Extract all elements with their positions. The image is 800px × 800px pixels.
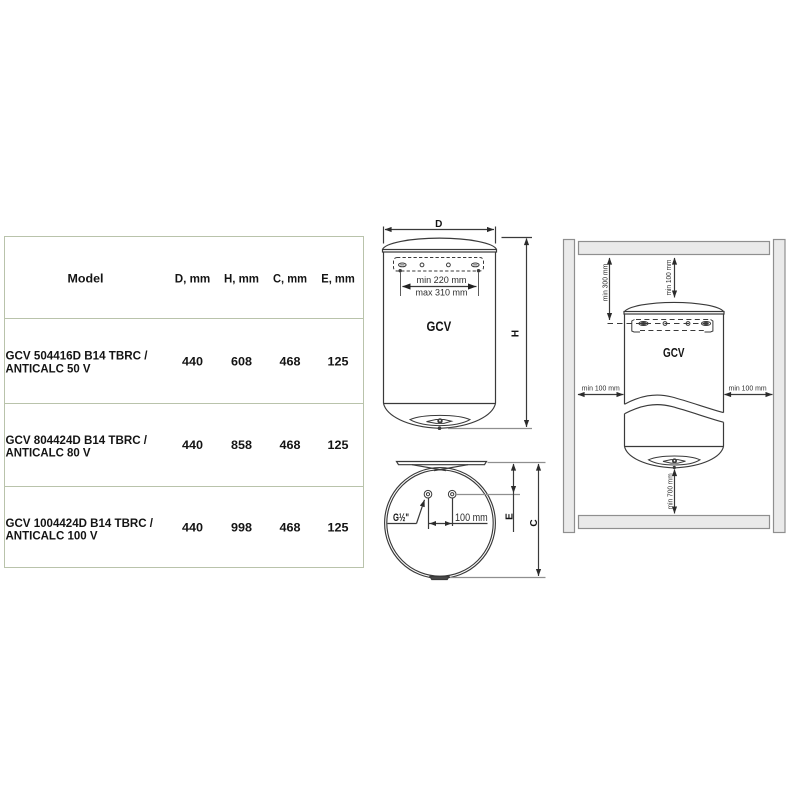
svg-text:E, mm: E, mm — [321, 272, 355, 286]
svg-text:468: 468 — [280, 521, 301, 535]
svg-text:min 100 mm: min 100 mm — [582, 384, 620, 393]
svg-text:min 300 mm: min 300 mm — [600, 264, 609, 302]
svg-text:min 220 mm: min 220 mm — [417, 275, 467, 285]
svg-text:100 mm: 100 mm — [455, 512, 488, 524]
svg-text:ANTICALC 80 V: ANTICALC 80 V — [6, 445, 92, 459]
svg-text:C, mm: C, mm — [273, 272, 307, 286]
svg-text:min 700 mm: min 700 mm — [666, 473, 675, 509]
svg-text:998: 998 — [231, 521, 252, 535]
svg-text:D, mm: D, mm — [175, 272, 211, 286]
svg-text:E: E — [505, 513, 516, 520]
svg-text:858: 858 — [231, 438, 252, 452]
svg-text:ANTICALC 100 V: ANTICALC 100 V — [6, 528, 99, 542]
svg-text:ANTICALC 50 V: ANTICALC 50 V — [6, 362, 92, 376]
svg-text:125: 125 — [328, 521, 349, 535]
svg-text:GCV: GCV — [663, 346, 685, 360]
svg-text:440: 440 — [182, 355, 203, 369]
svg-text:G½": G½" — [393, 512, 409, 524]
svg-text:min 100 mm: min 100 mm — [729, 384, 767, 393]
svg-text:D: D — [435, 219, 442, 230]
svg-text:C: C — [529, 519, 540, 526]
svg-text:GCV 504416D B14 TBRC /: GCV 504416D B14 TBRC / — [6, 349, 149, 363]
svg-text:H, mm: H, mm — [224, 272, 259, 286]
svg-text:125: 125 — [328, 355, 349, 369]
svg-text:608: 608 — [231, 355, 252, 369]
svg-text:max 310 mm: max 310 mm — [416, 288, 468, 298]
svg-text:125: 125 — [328, 438, 349, 452]
svg-text:468: 468 — [280, 438, 301, 452]
svg-text:H: H — [510, 330, 521, 337]
svg-text:min 100 mm: min 100 mm — [664, 260, 673, 296]
svg-text:468: 468 — [280, 355, 301, 369]
svg-text:GCV: GCV — [427, 318, 452, 334]
svg-text:440: 440 — [182, 521, 203, 535]
svg-text:Model: Model — [68, 272, 104, 286]
svg-text:440: 440 — [182, 438, 203, 452]
